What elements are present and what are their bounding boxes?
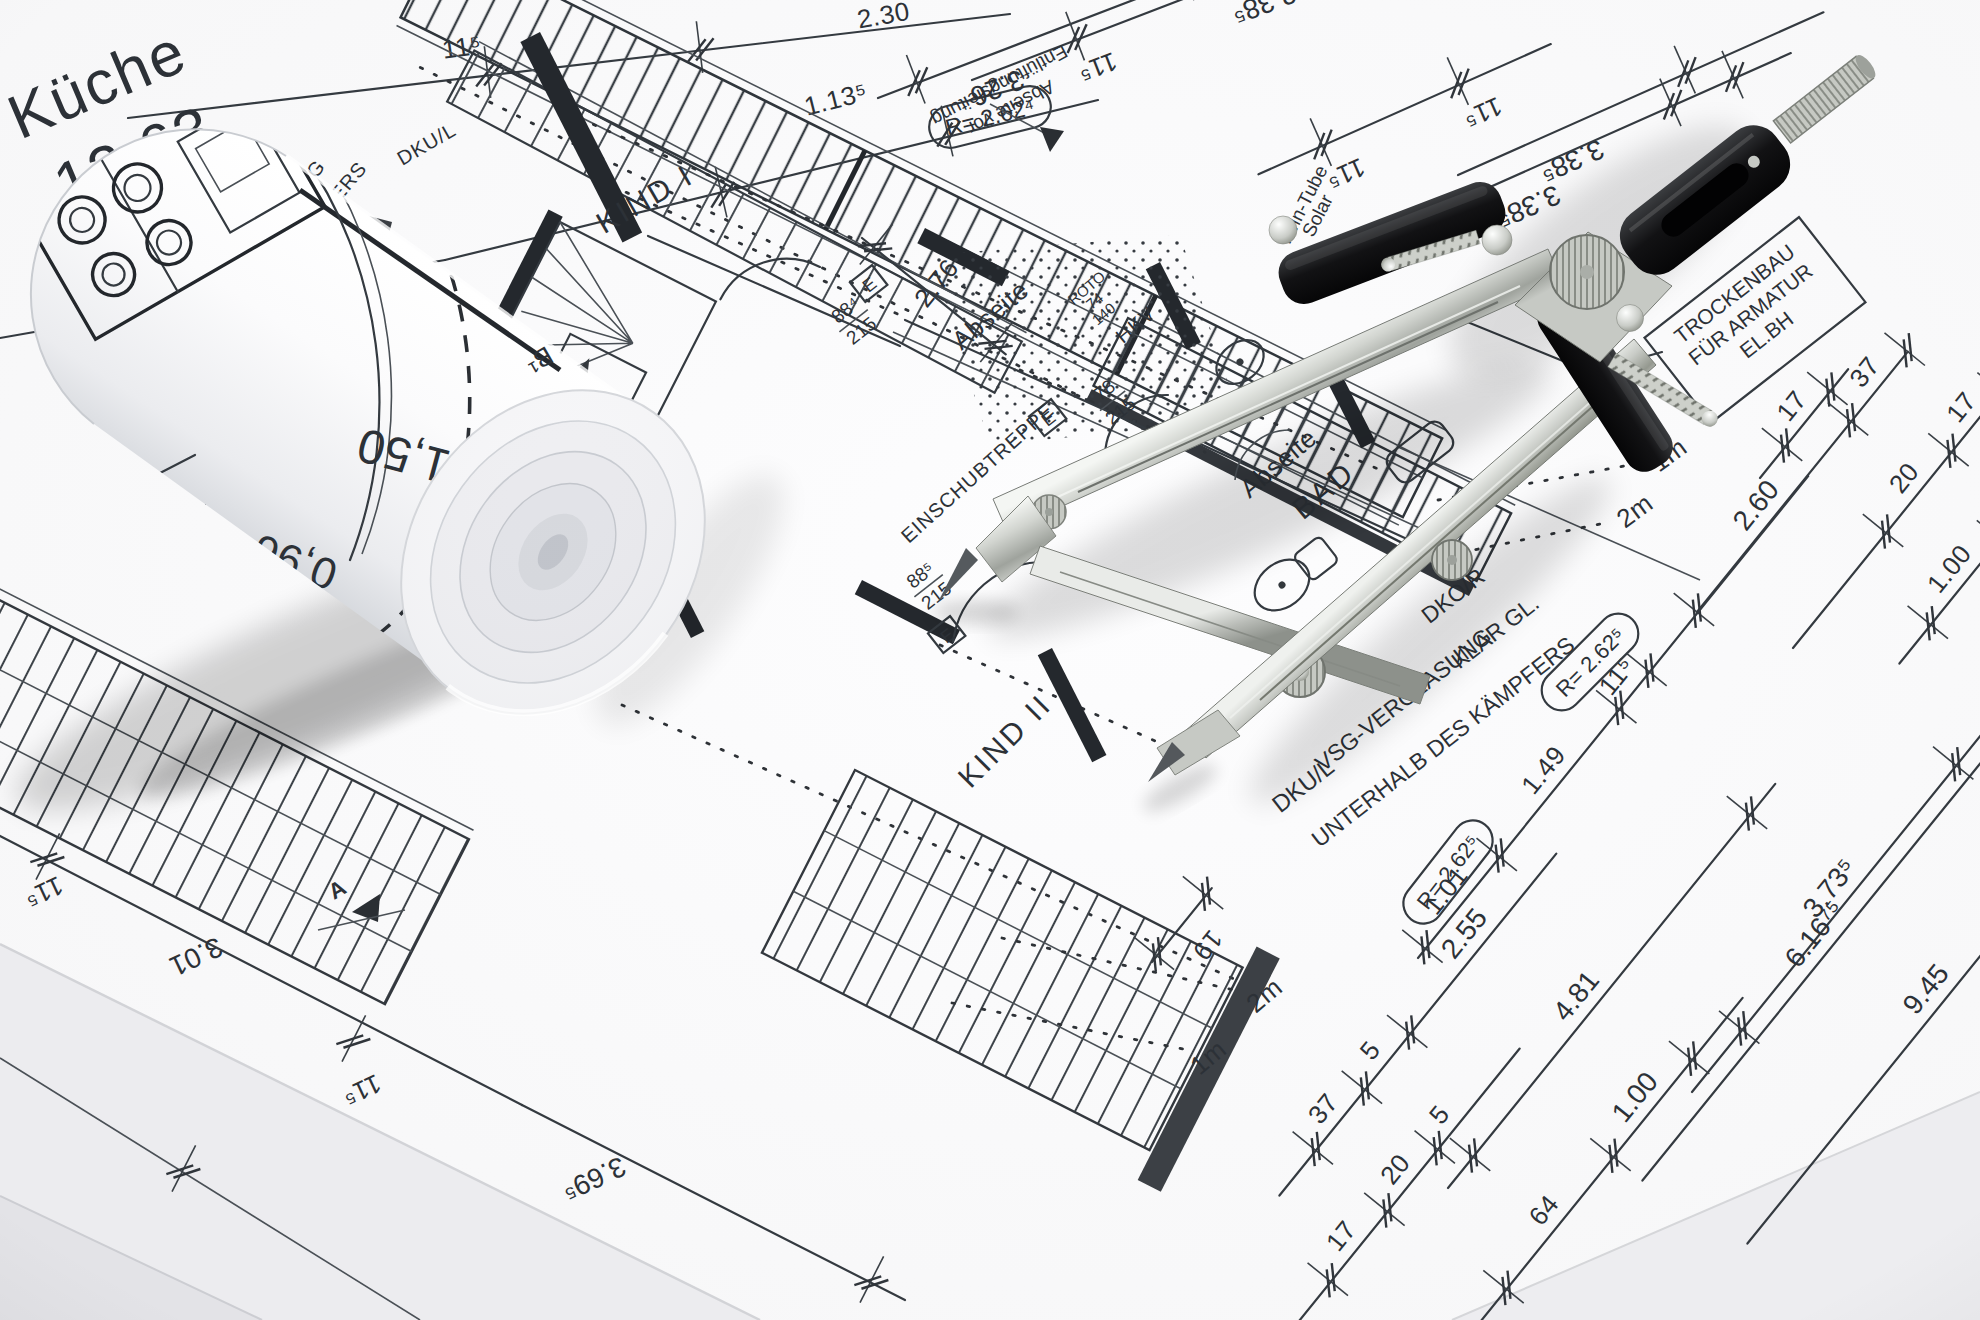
blueprint-photo-scene: 11⁵ 2.30 1.13⁵ R= 2.62⁴ Küche 12,63 DKU/… bbox=[0, 0, 1980, 1320]
blueprint-photo: 11⁵ 2.30 1.13⁵ R= 2.62⁴ Küche 12,63 DKU/… bbox=[0, 0, 1980, 1320]
photo-vignette bbox=[0, 0, 1980, 1320]
